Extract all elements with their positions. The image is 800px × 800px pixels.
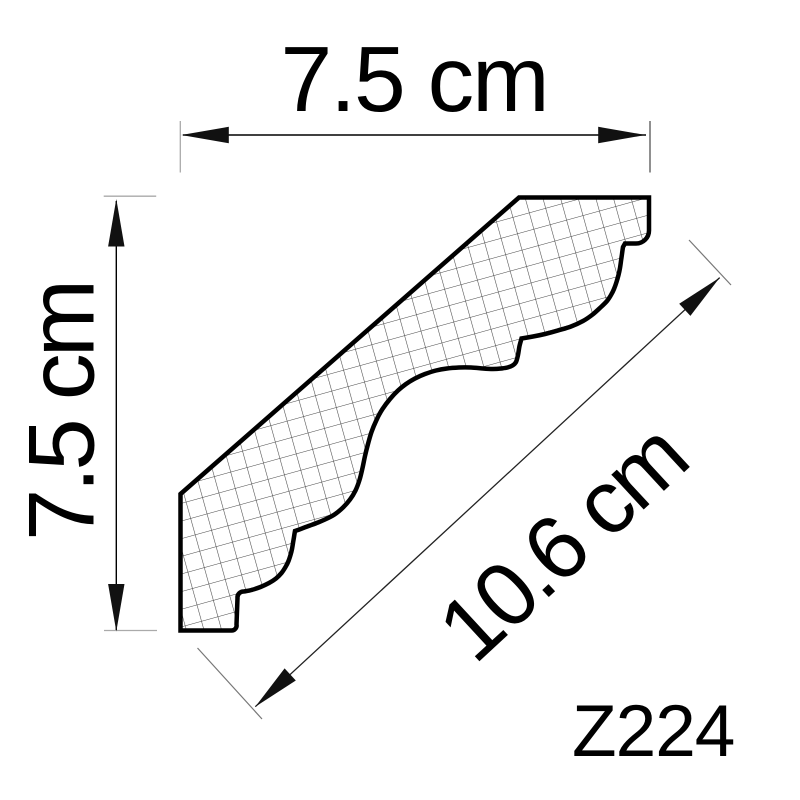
svg-text:7.5 cm: 7.5 cm xyxy=(280,27,547,131)
svg-text:Z224: Z224 xyxy=(572,691,734,772)
svg-text:7.5 cm: 7.5 cm xyxy=(9,283,114,541)
